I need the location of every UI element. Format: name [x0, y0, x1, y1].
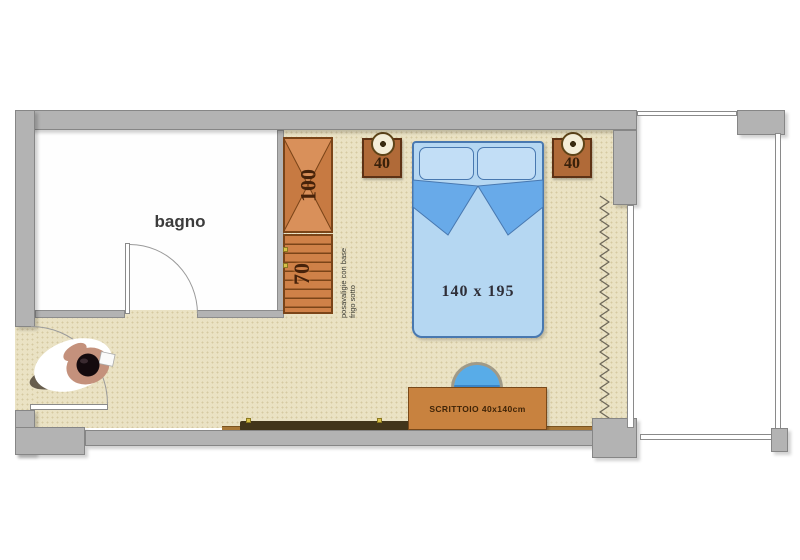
- wardrobe: 100: [283, 137, 333, 234]
- luggage-rack-label: 70: [264, 251, 340, 297]
- person-figure: [25, 330, 125, 400]
- pillow-right: [477, 147, 536, 180]
- wall-corner-bottom-left-b: [15, 427, 85, 455]
- floor-plan-canvas: bagno 100 70 posavaligie con base frigo …: [0, 0, 800, 560]
- balcony-rail-right: [775, 133, 781, 433]
- balcony-rail-bottom: [640, 434, 773, 440]
- radiator-valve: [246, 418, 251, 423]
- balcony-post-bottom-right: [771, 428, 788, 452]
- entry-door-leaf: [30, 404, 108, 410]
- wall-bottom: [85, 430, 600, 446]
- wall-top: [15, 110, 637, 130]
- radiator-valve: [377, 418, 382, 423]
- bathroom-wall-bottom-right: [197, 310, 284, 318]
- desk: SCRITTOIO 40x140cm: [408, 387, 547, 430]
- wardrobe-label: 100: [260, 161, 357, 211]
- bed-fold: [413, 179, 543, 237]
- bathroom-wall-bottom-left: [35, 310, 125, 318]
- lamp-icon: [371, 132, 395, 156]
- balcony-rail-top: [637, 111, 737, 116]
- lamp-icon: [561, 132, 585, 156]
- nightstand-left-label: 40: [374, 155, 390, 173]
- luggage-rack-note: posavaligie con base frigo sotto: [339, 248, 357, 318]
- balcony-pillar-top-right: [737, 110, 785, 135]
- balcony-window: [627, 205, 634, 428]
- desk-label: SCRITTOIO 40x140cm: [429, 404, 525, 414]
- rack-hinge-dot: [283, 263, 288, 268]
- curtain-squiggle-icon: [596, 194, 616, 434]
- nightstand-right-label: 40: [564, 155, 580, 173]
- luggage-rack: 70: [283, 234, 333, 314]
- pillow-left: [419, 147, 474, 180]
- bathroom-label: bagno: [120, 212, 240, 232]
- rack-hinge-dot: [283, 247, 288, 252]
- wall-stub-right: [613, 130, 637, 205]
- bed-size-label: 140 x 195: [412, 283, 544, 301]
- wall-left: [15, 110, 35, 327]
